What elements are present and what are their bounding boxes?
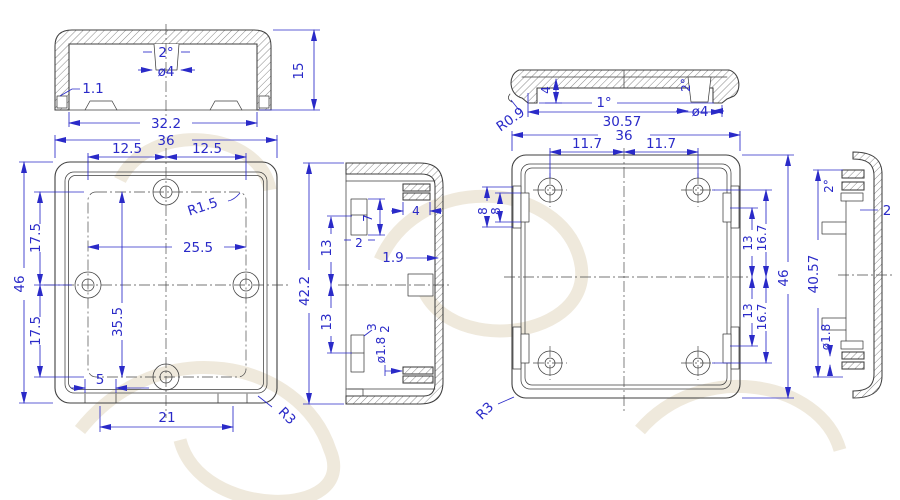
- dim-draft-angle: 2°: [158, 45, 173, 61]
- dim-rib-upper: 13: [319, 239, 335, 256]
- dim-hole-lower: 16.7: [755, 304, 769, 331]
- dim-pitch-right: 12.5: [192, 141, 222, 157]
- dim-pitch-right: 11.7: [646, 136, 676, 152]
- dim-width: 36: [157, 133, 174, 149]
- dim-boss-height: 35.5: [110, 307, 126, 337]
- dim-draft-boss: 2°: [679, 78, 693, 92]
- dim-wall-thickness: 1.9: [382, 250, 403, 266]
- dim-rib-width: 2: [355, 236, 363, 250]
- dim-height: 42.2: [297, 276, 313, 306]
- dim-tab-inner: 8: [489, 207, 503, 215]
- view-cover-section-front: 2° ø4 1.1 32.2 15: [55, 24, 320, 132]
- dimensions: 2° ø4 1.1 32.2 15: [60, 30, 320, 132]
- dim-tab-outer: 8: [476, 207, 490, 215]
- dim-boss-span: 25.5: [183, 240, 213, 256]
- geometry: [338, 163, 452, 404]
- dim-tab-upper: 13: [741, 235, 755, 250]
- dim-draft-wall: 1°: [596, 95, 611, 111]
- dim-corner-radius: R3: [473, 399, 497, 423]
- dim-height: 15: [291, 62, 307, 79]
- dim-pitch-left: 12.5: [112, 141, 142, 157]
- dim-hole-upper: 16.7: [755, 225, 769, 252]
- dim-boss-width: 3: [365, 323, 379, 331]
- dim-pitch-left: 11.7: [572, 136, 602, 152]
- technical-drawing-canvas: 2° ø4 1.1 32.2 15: [0, 0, 900, 500]
- dim-wall-thickness: 1.1: [82, 81, 103, 97]
- dim-draft-angle: 2°: [822, 179, 836, 193]
- view-cover-section-end: 2° 2 40.57 ø1.8: [806, 152, 892, 398]
- view-cover-section-side: R0.9 4 1° 2° ø4 30.57: [493, 70, 738, 135]
- dim-boss-step: 2: [378, 325, 392, 333]
- view-base-front: 36 12.5 12.5 46 17.5 17.5 35.5: [12, 133, 299, 432]
- dim-hole-diameter: ø1.8: [819, 324, 833, 350]
- dim-fillet-radius: R1.5: [186, 195, 220, 220]
- dim-pitch-lower: 17.5: [28, 316, 44, 346]
- dim-width: 36: [615, 128, 632, 144]
- view-cover-inside: 36 11.7 11.7 8 8 13 16.7: [473, 128, 794, 423]
- drawing-svg: 2° ø4 1.1 32.2 15: [0, 0, 900, 500]
- dim-slot-span: 21: [158, 410, 175, 426]
- dim-lip-width: 4: [412, 204, 420, 218]
- dim-inner-width: 32.2: [151, 116, 181, 132]
- dim-height: 46: [12, 275, 28, 292]
- dim-corner-radius: R0.9: [493, 104, 527, 135]
- dim-rib-height: 7: [361, 214, 375, 222]
- dim-rib-lower: 13: [319, 313, 335, 330]
- dim-boss-diameter: ø4: [158, 64, 175, 80]
- dim-pitch-upper: 17.5: [28, 223, 44, 253]
- boss-rib-centerline-rect: [88, 192, 246, 377]
- view-base-section-side: 42.2 13 13 7 2 4 1.9 3 2 ø1: [297, 163, 452, 404]
- dim-height: 46: [776, 269, 792, 286]
- dim-inner-length: 40.57: [806, 255, 822, 294]
- dim-hole-diameter: ø1.8: [374, 337, 388, 363]
- screw-boss: [75, 179, 259, 390]
- dim-lip-height: 4: [539, 86, 553, 94]
- dim-wall-thickness: 2: [883, 203, 892, 219]
- dim-slot-width: 5: [96, 372, 105, 388]
- geometry: [504, 148, 748, 412]
- dim-tab-lower: 13: [741, 303, 755, 318]
